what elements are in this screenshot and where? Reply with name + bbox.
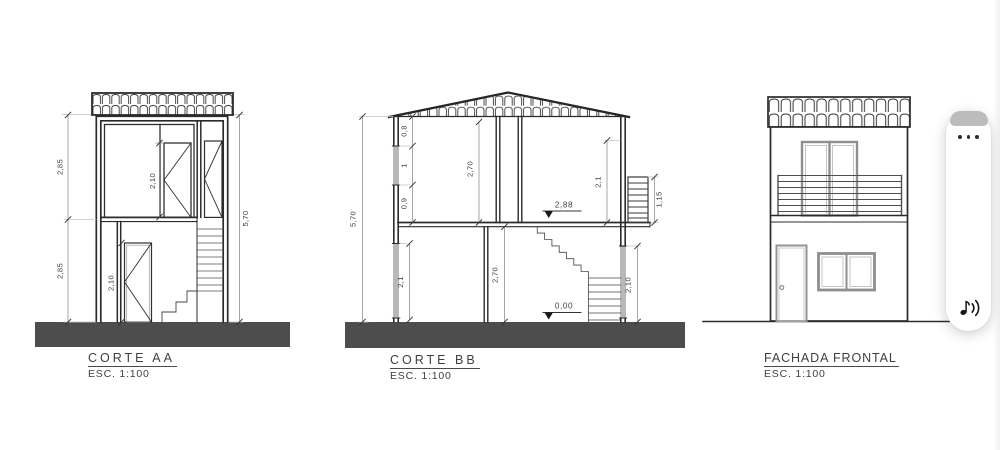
corte-aa-scale: ESC. 1:100: [88, 368, 177, 380]
toolbar-drag-handle[interactable]: [950, 111, 988, 126]
corte-bb-stairs: [530, 227, 621, 322]
drawings-svg: 2,85 2,85 2,10 2,10 5,70: [0, 0, 1000, 450]
corte-aa-roof: [62, 93, 244, 115]
dim-label-bb-lower-ceiling: 2,70: [491, 267, 500, 283]
dim-label-aa-upper-door: 2,10: [148, 173, 157, 189]
fachada-roof: [768, 97, 910, 127]
corte-bb-title-block: CORTE BB ESC. 1:100: [390, 351, 480, 382]
corte-aa-drawing: 2,85 2,85 2,10 2,10 5,70: [35, 93, 290, 347]
corte-aa-stairs: [162, 229, 223, 322]
read-aloud-icon[interactable]: [946, 294, 991, 320]
fachada-window: [819, 254, 875, 291]
dim-label-bb-sill: 0,9: [400, 198, 409, 209]
level-label-000: 0,00: [555, 302, 573, 311]
dim-label-bb-lintel: 0,8: [400, 125, 409, 136]
dim-label-bb-railing: 1,15: [655, 192, 664, 208]
fachada-facade-wall: [771, 127, 908, 321]
corte-aa-upper-openings: [105, 125, 223, 218]
dim-label-bb-window: 1: [400, 163, 409, 168]
corte-bb-walls: [393, 117, 651, 323]
level-label-288: 2,88: [555, 201, 573, 210]
dim-label-aa-lower-floor: 2,85: [56, 263, 65, 279]
blueprint-sheet: 2,85 2,85 2,10 2,10 5,70: [0, 0, 1000, 450]
fachada-title-block: FACHADA FRONTAL ESC. 1:100: [764, 349, 899, 380]
dim-label-aa-total-height: 5,70: [241, 211, 250, 227]
dim-label-bb-lower-left: 2,1: [396, 276, 405, 287]
fachada-scale: ESC. 1:100: [764, 368, 899, 380]
corte-bb-scale: ESC. 1:100: [390, 370, 480, 382]
dim-label-bb-upper-right: 2,1: [594, 176, 603, 187]
floating-toolbar[interactable]: [946, 111, 991, 331]
corte-bb-balcony-railing: [628, 177, 648, 223]
corte-bb-ground: [345, 322, 685, 348]
corte-aa-ground: [35, 322, 290, 347]
corte-bb-drawing: 2,88 0,00 5,70 0,8 1 0,9 2,70 2,1 1,15 2…: [345, 93, 685, 349]
corte-bb-roof: [389, 93, 629, 118]
corte-aa-lower-door: [125, 243, 152, 322]
dim-label-bb-total-height: 5,70: [349, 211, 358, 227]
page-edge-shade: [993, 0, 1000, 450]
fachada-frontal-drawing: [703, 97, 949, 322]
dim-label-aa-lower-door: 2,10: [107, 275, 116, 291]
dim-label-bb-upper-ceiling: 2,70: [466, 161, 475, 177]
corte-aa-title-block: CORTE AA ESC. 1:100: [88, 349, 177, 380]
corte-bb-title: CORTE BB: [390, 353, 480, 369]
dim-label-aa-upper-floor: 2,85: [56, 159, 65, 175]
dim-label-bb-lower-right: 2,10: [624, 277, 633, 293]
corte-bb-level-markers: 2,88 0,00: [543, 201, 581, 320]
more-options-icon[interactable]: [946, 135, 991, 139]
corte-aa-title: CORTE AA: [88, 351, 177, 367]
fachada-title: FACHADA FRONTAL: [764, 351, 899, 367]
